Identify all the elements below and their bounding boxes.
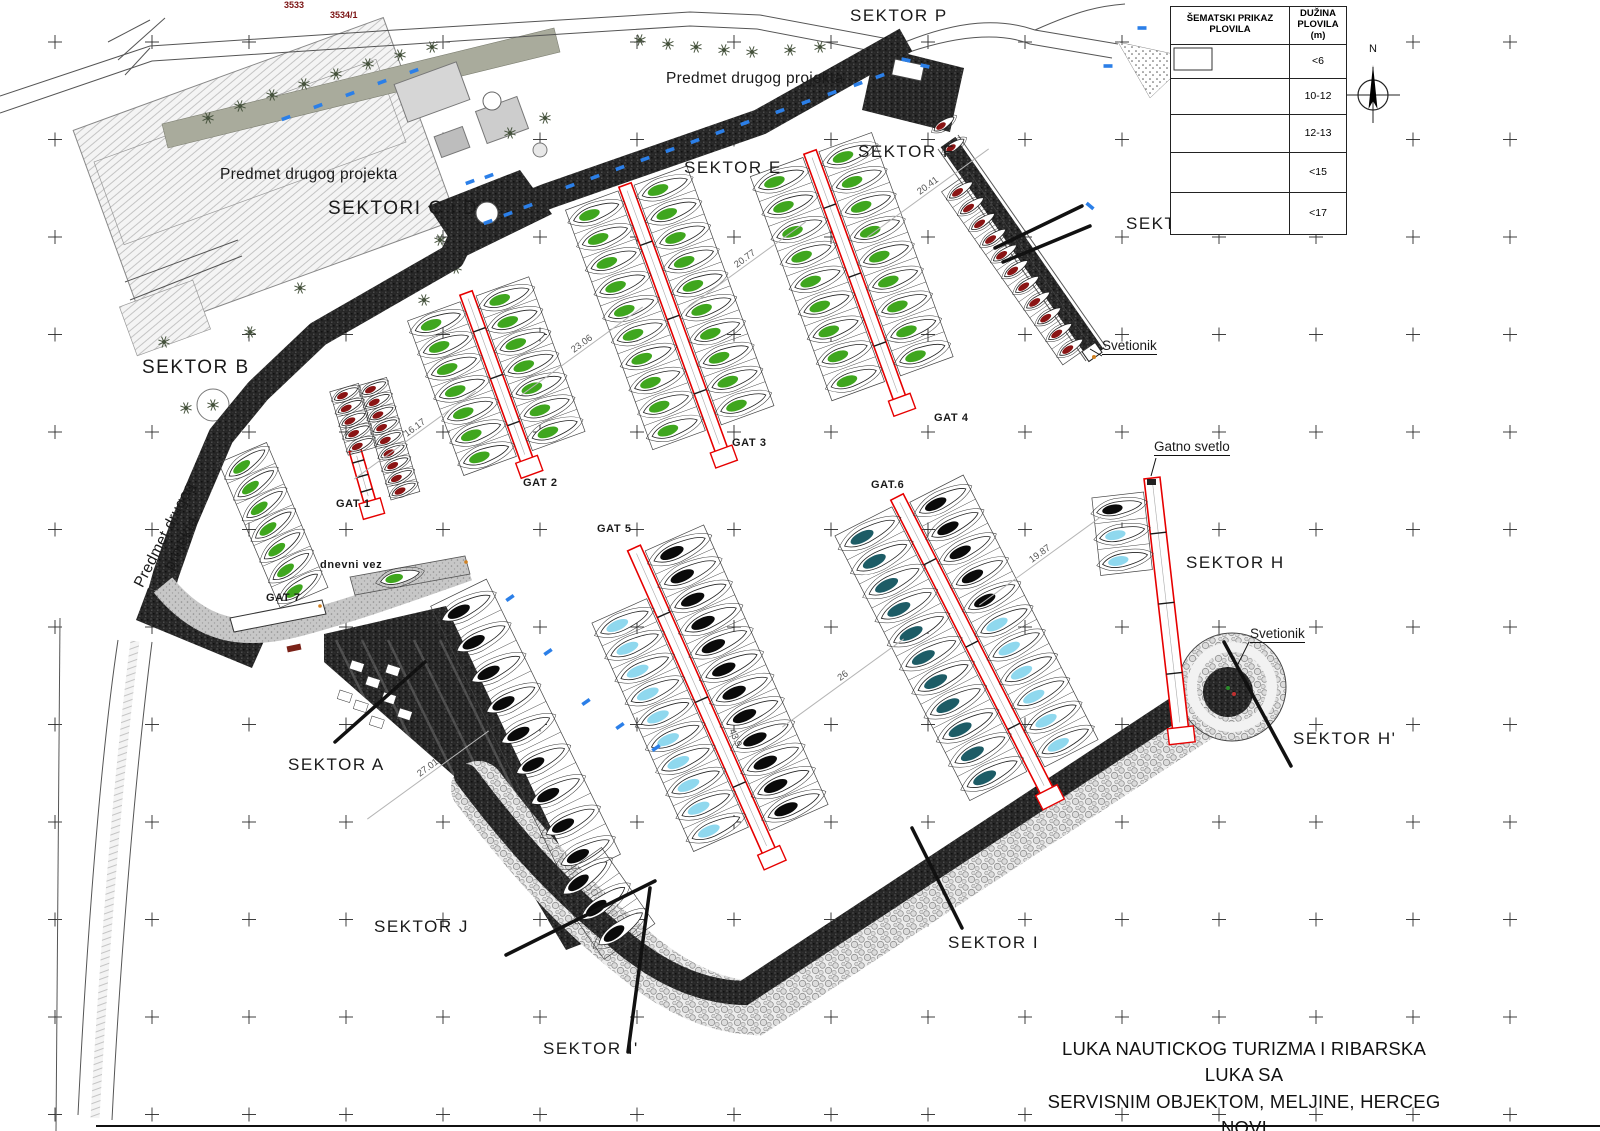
north-arrow: N: [1338, 44, 1408, 132]
legend-range: <17: [1290, 192, 1347, 234]
boat-symbol-lt15: [1171, 153, 1277, 187]
tree-icon: [690, 41, 701, 52]
drawing-title-line2: SERVISNIM OBJEKTOM, MELJINE, HERCEG NOVI: [1038, 1089, 1450, 1131]
boat-row: [219, 439, 328, 611]
breakwater-quay: [466, 698, 1192, 993]
parcel-number: 3534/1: [330, 10, 358, 20]
label-predmet-2: Predmet drugog projekta: [220, 166, 398, 184]
boat-icon: [1095, 544, 1156, 576]
boat-symbol-12-13: [1171, 115, 1277, 147]
tree-icon: [244, 326, 255, 337]
label-sektor-b: SEKTOR B: [142, 357, 250, 379]
boat-row: [1089, 492, 1156, 575]
parcel-number: 3533: [284, 0, 304, 10]
legend-range: <15: [1290, 152, 1347, 192]
label-gat-1: GAT 1: [336, 498, 371, 510]
label-gat-4: GAT 4: [934, 412, 969, 424]
label-sektor-i2: SEKTOR I': [543, 1039, 639, 1059]
label-sektor-j: SEKTOR J: [374, 917, 469, 937]
label-gat-2: GAT 2: [523, 477, 558, 489]
label-sektor-p: SEKTOR P: [850, 6, 948, 26]
legend-row: <17: [1171, 192, 1347, 234]
legend-row: <6: [1171, 44, 1347, 78]
label-predmet-1: Predmet drugog projekta: [666, 70, 844, 88]
legend-row: 10-12: [1171, 78, 1347, 114]
tree-icon: [294, 282, 305, 293]
drawing-title-line1: LUKA NAUTICKOG TURIZMA I RIBARSKA LUKA S…: [1038, 1036, 1450, 1089]
tree-icon: [718, 44, 729, 55]
label-sektor-h2: SEKTOR H': [1293, 729, 1396, 749]
north-label: N: [1338, 44, 1408, 55]
boat-symbol-10-12: [1171, 79, 1277, 109]
tree-icon: [418, 294, 429, 305]
label-sektor-h: SEKTOR H: [1186, 553, 1285, 573]
drawing-title: LUKA NAUTICKOG TURIZMA I RIBARSKA LUKA S…: [1038, 1036, 1450, 1131]
tree-icon: [207, 399, 218, 410]
legend-header-row: ŠEMATSKI PRIKAZ PLOVILA DUŽINA PLOVILA (…: [1171, 7, 1347, 45]
tree-icon: [539, 112, 550, 123]
tree-icon: [634, 34, 645, 45]
tree-icon: [814, 41, 825, 52]
label-sektor-e: SEKTOR E: [684, 158, 782, 178]
label-gat-3: GAT 3: [732, 437, 767, 449]
label-sektor-i: SEKTOR I: [948, 933, 1039, 953]
label-gat-6: GAT.6: [871, 479, 904, 491]
label-dnevni-vez: dnevni vez: [320, 559, 382, 571]
label-sektor-a: SEKTOR A: [288, 755, 385, 775]
label-svetionik-top: Svetionik: [1102, 338, 1157, 355]
site-plan: SEKTOR P Predmet drugog projekta Predmet…: [0, 0, 1600, 1131]
legend-header-right: DUŽINA PLOVILA (m): [1290, 7, 1347, 45]
tree-icon: [746, 46, 757, 57]
boat-symbol-lt17: [1171, 193, 1277, 229]
label-gatno-svetlo: Gatno svetlo: [1154, 439, 1230, 456]
legend-row: <15: [1171, 152, 1347, 192]
label-gat-7: GAT 7: [266, 592, 301, 604]
label-sektori-cid: SEKTORI C i D: [328, 198, 478, 220]
compass-icon: [1338, 55, 1408, 127]
label-sektor-f: SEKTOR F: [858, 142, 955, 162]
tree-icon: [662, 38, 673, 49]
boat-symbol-lt6: [1171, 45, 1277, 73]
tree-icon: [784, 44, 795, 55]
tree-icon: [180, 402, 191, 413]
legend-row: 12-13: [1171, 114, 1347, 152]
label-gat-5: GAT 5: [597, 523, 632, 535]
legend-header-left: ŠEMATSKI PRIKAZ PLOVILA: [1171, 7, 1290, 45]
legend-table: ŠEMATSKI PRIKAZ PLOVILA DUŽINA PLOVILA (…: [1170, 6, 1347, 235]
label-svetionik-bottom: Svetionik: [1250, 626, 1305, 643]
